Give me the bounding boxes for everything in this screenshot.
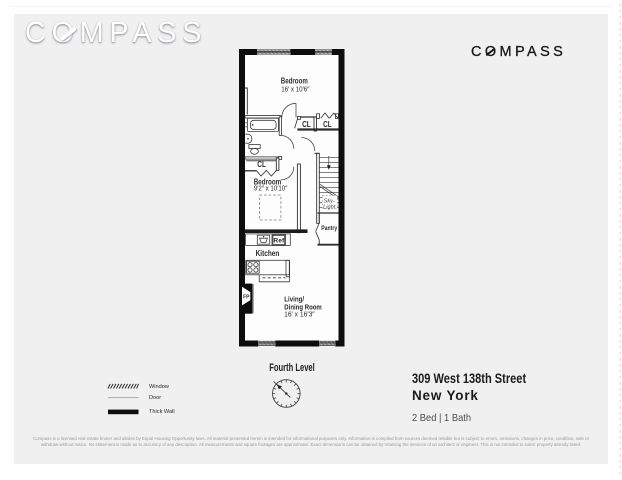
svg-text:9′2″ x 10′10″: 9′2″ x 10′10″ — [254, 186, 288, 193]
svg-text:Pantry: Pantry — [321, 225, 337, 232]
svg-text:Dining Room: Dining Room — [284, 303, 322, 312]
svg-text:16′ x 10′6″: 16′ x 10′6″ — [281, 87, 310, 94]
svg-text:Kitchen: Kitchen — [256, 249, 280, 258]
svg-text:CL: CL — [257, 159, 266, 169]
svg-text:16′ x 16′3″: 16′ x 16′3″ — [284, 312, 315, 319]
svg-text:Bedroom: Bedroom — [281, 77, 308, 86]
svg-text:CL: CL — [302, 119, 311, 129]
svg-text:CL: CL — [323, 119, 332, 129]
svg-text:FP: FP — [243, 295, 250, 301]
svg-text:Ref: Ref — [273, 237, 285, 244]
svg-text:Fourth Level: Fourth Level — [269, 362, 315, 374]
svg-text:Light: Light — [323, 204, 336, 210]
